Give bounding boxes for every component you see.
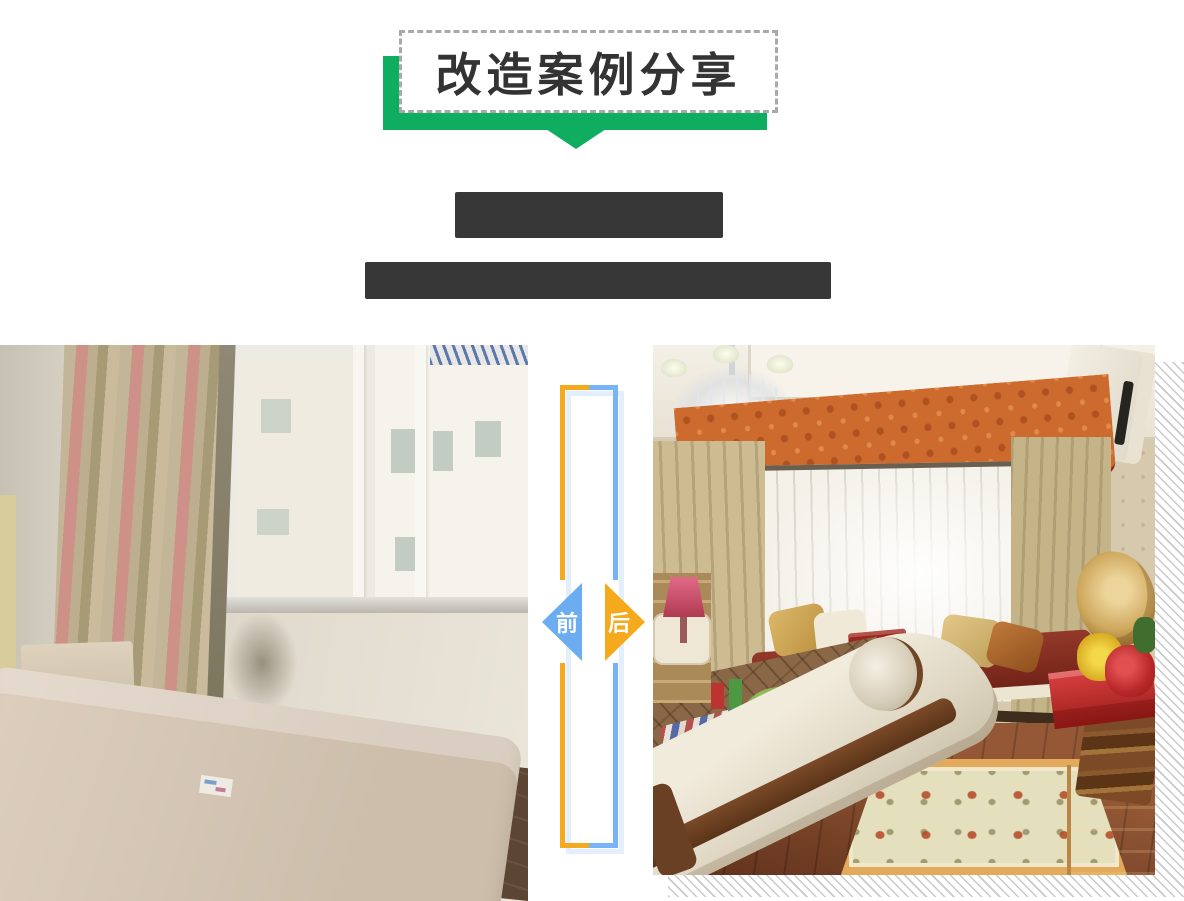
masked-headline-bar (455, 192, 723, 238)
masked-subheadline-bar (365, 262, 831, 299)
footboard-scroll (849, 637, 923, 711)
chandelier-shade (661, 359, 687, 377)
window (225, 345, 528, 613)
after-label: 后 (603, 607, 635, 637)
divider-frame (560, 663, 565, 848)
ribbon-pointer-triangle (546, 129, 606, 149)
window-frame-bar (415, 345, 426, 607)
green-vase (1133, 617, 1155, 653)
chandelier-shade (767, 355, 793, 373)
building-outside (237, 359, 355, 599)
window-frame-bar (353, 345, 364, 607)
before-photo (0, 345, 528, 901)
chandelier-shade (713, 345, 739, 363)
section-title-box: 改造案例分享 (399, 30, 778, 113)
before-label: 前 (551, 607, 583, 637)
divider-frame (613, 663, 618, 848)
table-lamp-stem (680, 617, 687, 643)
after-photo (653, 345, 1155, 875)
candle (711, 683, 724, 709)
balcony-railing (430, 345, 528, 365)
building-outside (375, 345, 528, 597)
divider-frame (613, 385, 618, 580)
section-title: 改造案例分享 (436, 39, 742, 105)
page-canvas: 改造案例分享 (0, 0, 1184, 901)
divider-frame (560, 385, 565, 580)
